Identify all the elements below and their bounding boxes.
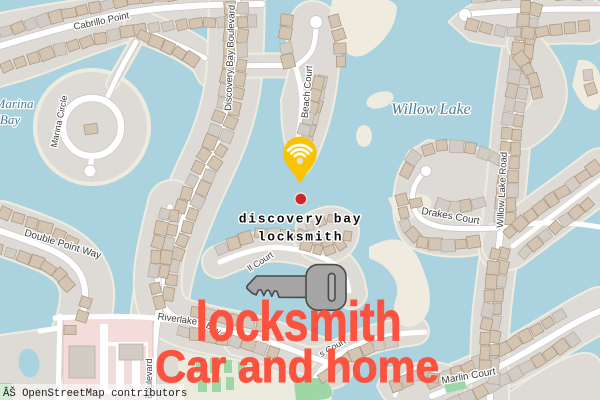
svg-text:Car and home: Car and home [155,341,439,392]
svg-text:ÂŠ OpenStreetMap contributors: ÂŠ OpenStreetMap contributors [3,386,187,400]
svg-text:locksmith: locksmith [258,230,344,245]
svg-text:Bay: Bay [0,112,20,127]
svg-text:discovery bay: discovery bay [239,212,363,227]
svg-text:Marina: Marina [0,96,34,111]
svg-text:Willow Lake: Willow Lake [391,101,471,118]
